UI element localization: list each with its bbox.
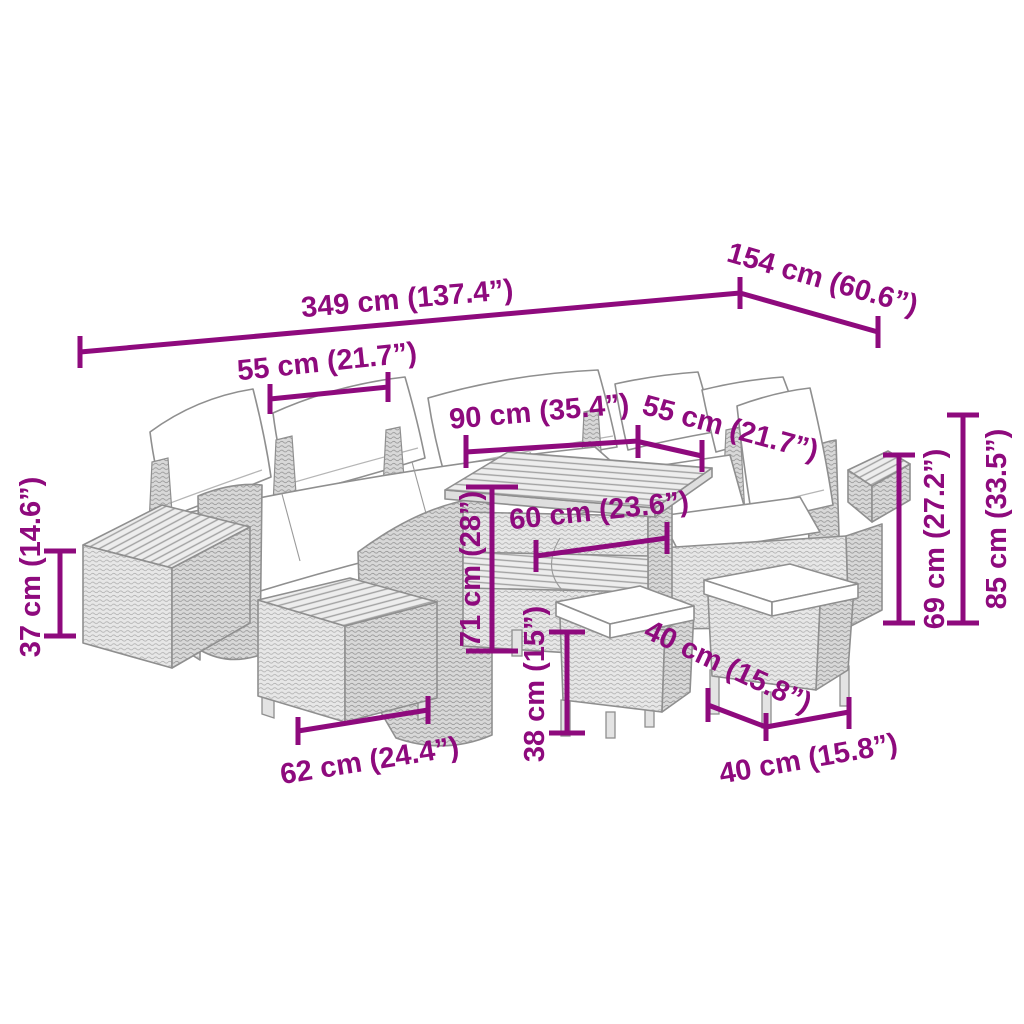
dim-side-table-height: 37 cm (14.6”) [15, 477, 76, 658]
dim-label-table-height: 71 cm (28”) [455, 491, 487, 647]
diagram-svg: 349 cm (137.4”) 154 cm (60.6”) 55 cm (21… [0, 0, 1024, 1024]
stool-left [556, 586, 694, 738]
dim-label-side-table-height: 37 cm (14.6”) [15, 477, 47, 658]
dim-label-stool-height: 38 cm (15”) [519, 606, 551, 762]
dim-label-stool-width: 40 cm (15.8”) [717, 728, 900, 791]
dim-label-footstool-width: 62 cm (24.4”) [278, 731, 461, 791]
footstool [258, 578, 437, 722]
product-dimension-diagram: 349 cm (137.4”) 154 cm (60.6”) 55 cm (21… [0, 0, 1024, 1024]
dim-total-height: 85 cm (33.5”) [947, 415, 1013, 623]
dim-label-total-height: 85 cm (33.5”) [981, 429, 1013, 610]
dim-label-backrest-height: 69 cm (27.2”) [919, 449, 951, 630]
dim-overall-depth: 154 cm (60.6”) [724, 237, 922, 348]
dim-stool-width: 40 cm (15.8”) [717, 697, 900, 791]
dim-label-overall-depth: 154 cm (60.6”) [724, 237, 922, 322]
